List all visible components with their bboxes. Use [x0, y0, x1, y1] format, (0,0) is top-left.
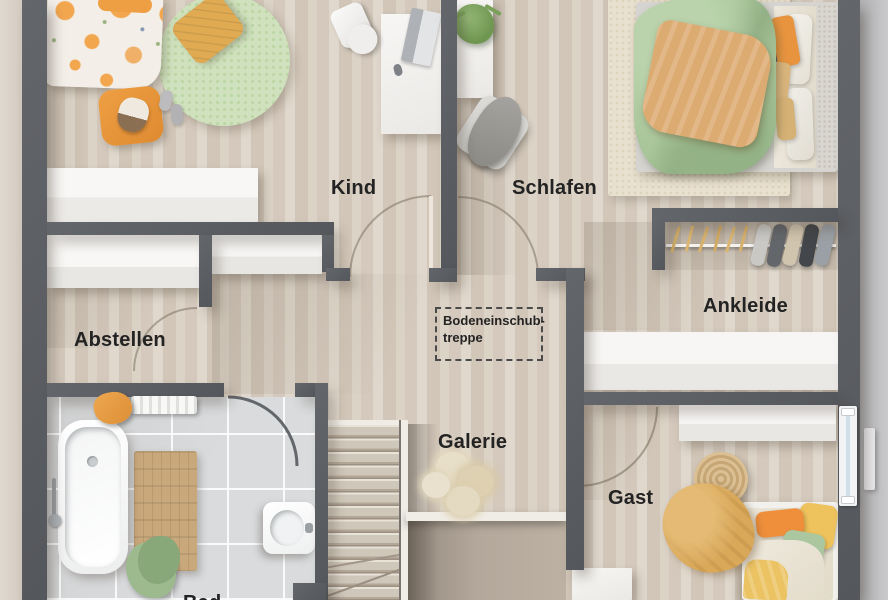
- floor-plan: Kind Schlafen Abstellen Bodeneinschub- t…: [0, 0, 888, 600]
- wall-hall-east: [566, 268, 584, 570]
- attic-hatch-label-line1: Bodeneinschub-: [443, 312, 541, 329]
- wall-bad-stairs: [315, 383, 328, 600]
- window-glass: [846, 416, 850, 496]
- room-label-schlafen: Schlafen: [512, 177, 597, 200]
- room-label-ankleide: Ankleide: [703, 295, 788, 318]
- wall-gast-north: [584, 392, 838, 405]
- wall-ankleide-niche-west: [652, 222, 665, 270]
- window-handle-top: [841, 408, 855, 416]
- wall-kind-schlafen-foot: [429, 268, 457, 282]
- wall-ankleide-north: [652, 208, 838, 222]
- room-label-kind: Kind: [331, 177, 376, 200]
- window-handle-bottom: [841, 496, 855, 504]
- wall-bad-north-stub: [295, 383, 315, 397]
- bad-door-arc: [228, 397, 297, 466]
- wall-niche-stub: [326, 268, 350, 281]
- wall-kind-south: [47, 222, 334, 235]
- room-label-gast: Gast: [608, 487, 653, 510]
- kind-door-arc: [350, 196, 431, 277]
- room-label-abstellen: Abstellen: [74, 329, 166, 352]
- room-label-bad: Bad: [183, 592, 221, 600]
- wall-bad-stairs-foot: [293, 583, 326, 600]
- gast-door-arc: [578, 407, 657, 486]
- wall-niche-east: [322, 235, 334, 272]
- wall-abstellen-east: [199, 235, 212, 307]
- wall-outer-right: [838, 0, 860, 600]
- wall-outer-left: [22, 0, 47, 600]
- room-label-galerie: Galerie: [438, 431, 507, 454]
- wall-bad-north: [47, 383, 224, 397]
- attic-hatch-outline: Bodeneinschub- treppe: [435, 307, 543, 361]
- attic-hatch-label-line2: treppe: [443, 329, 541, 346]
- schlafen-door-arc: [458, 197, 538, 277]
- gast-window: [839, 406, 857, 506]
- wall-kind-schlafen: [441, 0, 457, 270]
- towel-radiator: [131, 396, 197, 414]
